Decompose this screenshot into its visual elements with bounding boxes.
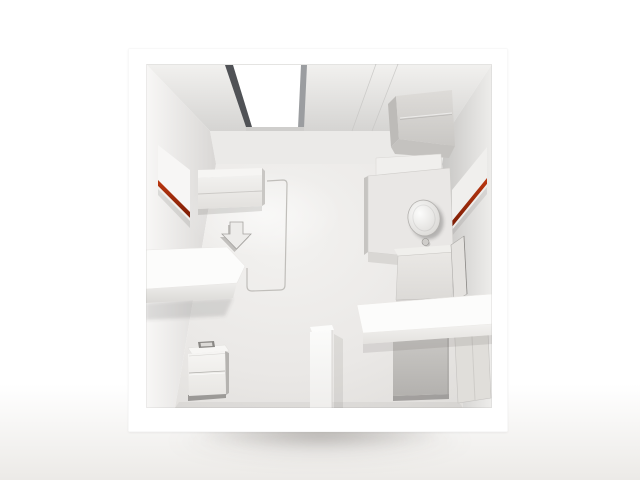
partition-stub xyxy=(310,325,343,408)
room-model-frame xyxy=(128,48,508,432)
wall-bed xyxy=(198,168,265,215)
room-interior xyxy=(146,64,492,408)
ceiling-unit-box xyxy=(388,90,455,158)
shower-front xyxy=(396,252,454,300)
stub-front-face xyxy=(310,330,332,408)
tray-inner xyxy=(201,343,213,347)
platform-side-left xyxy=(364,176,368,255)
leaning-panel xyxy=(451,236,467,302)
scene-description: Cutaway 3D render viewed from above of a… xyxy=(0,0,1,1)
skylight-sill xyxy=(246,127,304,131)
nightstand xyxy=(188,341,229,401)
render-canvas: Cutaway 3D render viewed from above of a… xyxy=(0,0,640,480)
bed-side-face xyxy=(262,168,265,206)
bed-front-face xyxy=(198,175,262,209)
flush-knob xyxy=(422,239,429,246)
stub-floor-shadow xyxy=(334,334,343,408)
shower-box xyxy=(394,245,454,306)
partition-top xyxy=(146,247,245,289)
